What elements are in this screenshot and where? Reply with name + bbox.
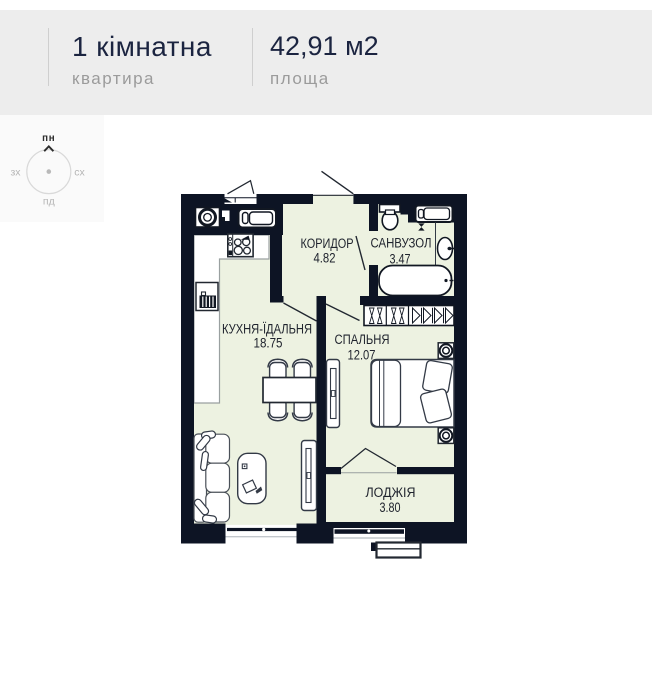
svg-text:САНВУЗОЛ: САНВУЗОЛ bbox=[371, 236, 432, 252]
svg-text:ЛОДЖІЯ: ЛОДЖІЯ bbox=[366, 485, 416, 501]
svg-text:4.82: 4.82 bbox=[314, 251, 336, 267]
svg-text:пд: пд bbox=[43, 196, 55, 208]
svg-text:3.47: 3.47 bbox=[390, 251, 411, 267]
svg-text:зх: зх bbox=[10, 166, 21, 178]
svg-text:КОРИДОР: КОРИДОР bbox=[301, 236, 354, 252]
svg-text:18.75: 18.75 bbox=[254, 336, 283, 352]
svg-text:сх: сх bbox=[74, 166, 85, 178]
svg-text:пн: пн bbox=[42, 133, 55, 144]
svg-text:СПАЛЬНЯ: СПАЛЬНЯ bbox=[335, 332, 390, 348]
svg-text:3.80: 3.80 bbox=[380, 500, 401, 516]
svg-text:12.07: 12.07 bbox=[348, 347, 376, 363]
